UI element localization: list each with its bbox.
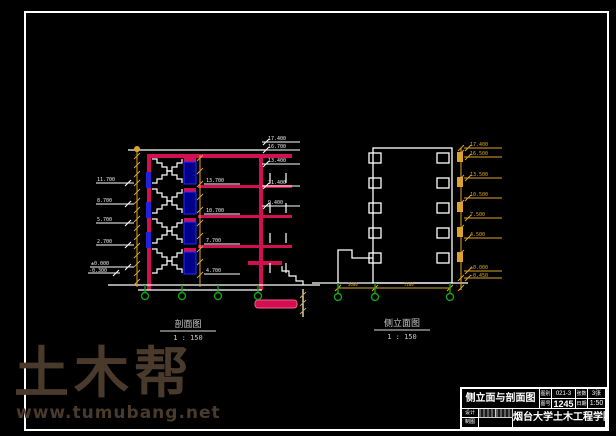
watermark-url: www.tumubang.net [16, 403, 221, 423]
dim-ticks [300, 292, 306, 314]
grid-stems [145, 285, 258, 292]
dim-window-mark [457, 227, 463, 237]
elevation-label: 10.500 [470, 192, 488, 198]
window [369, 178, 381, 188]
elevation-label: 16.700 [268, 144, 286, 150]
window [369, 228, 381, 238]
dim-window-mark [457, 202, 463, 212]
elevation-label: 5.700 [97, 217, 112, 223]
title-block-value: 3张 [588, 389, 605, 399]
dim-window-mark [457, 152, 463, 162]
elevation-label: 10.700 [206, 208, 224, 214]
elevation-dims: 3600 7200 [335, 145, 464, 291]
elevation-scale: 1 : 150 [387, 333, 417, 341]
grid-bubble [179, 293, 186, 300]
entrance-canopy [248, 261, 282, 265]
title-block-label: 图别 [540, 389, 552, 399]
section-mid-labels: 13.700 10.700 7.700 4.700 [206, 178, 224, 274]
wall-window [146, 202, 151, 218]
section-left-labels: 11.700 8.700 5.700 2.700 ±0.000 -0.300 [89, 177, 115, 274]
door-lintel [184, 248, 196, 252]
section-grid-bubbles [142, 285, 262, 300]
right-wall [259, 154, 263, 290]
floor-slab [198, 215, 292, 218]
elevation-label: -0.450 [470, 273, 488, 279]
elevation-label: 2.700 [97, 239, 112, 245]
elevation-view: 3600 7200 17.400 16.500 13.500 10.500 7.… [312, 142, 502, 341]
elevation-label: 8.700 [97, 198, 112, 204]
window [437, 253, 449, 263]
title-block-signature [479, 409, 496, 418]
dim-origin-dot [134, 146, 140, 152]
annex-outline [338, 250, 373, 283]
title-block-label: 设计 [462, 409, 479, 418]
door-lintel [184, 158, 196, 162]
title-block-empty-cell [479, 418, 513, 427]
grid-bubble [335, 294, 342, 301]
elevation-label: 13.500 [470, 172, 488, 178]
title-block-signature [496, 409, 513, 418]
section-view: 11.700 8.700 5.700 2.700 ±0.000 -0.300 1… [88, 136, 320, 342]
elevation-label: ±0.000 [470, 265, 488, 271]
entrance-steps [282, 266, 303, 285]
dim-window-mark [457, 177, 463, 187]
window [369, 153, 381, 163]
elevation-label: 11.700 [97, 177, 115, 183]
elevation-label: 7.500 [470, 212, 485, 218]
elevation-label: ±0.000 [91, 261, 109, 267]
grid-bubble [372, 294, 379, 301]
elevation-label: -0.300 [89, 268, 107, 274]
stair-door [184, 162, 196, 184]
grid-bubble [255, 293, 262, 300]
title-block-value: 021-3 [552, 389, 576, 399]
cad-viewport: 11.700 8.700 5.700 2.700 ±0.000 -0.300 1… [0, 0, 616, 436]
elevation-label: 16.500 [470, 151, 488, 157]
elevation-label: 11.400 [268, 180, 286, 186]
elevation-label: 17.400 [268, 136, 286, 142]
elevation-label: 4.500 [470, 232, 485, 238]
grid-bubble [215, 293, 222, 300]
elevation-label: 17.400 [470, 142, 488, 148]
window [437, 178, 449, 188]
section-title: 剖面图 [174, 318, 201, 330]
stair-door [184, 222, 196, 244]
window [437, 228, 449, 238]
grid-bubble [447, 294, 454, 301]
title-block-drawing-title: 侧立面与剖面图 [462, 389, 540, 409]
floor-slab [198, 245, 292, 248]
elevation-label: 13.700 [206, 178, 224, 184]
elevation-labels: 17.400 16.500 13.500 10.500 7.500 4.500 … [470, 142, 488, 279]
dim-value: 3600 [348, 282, 358, 287]
window [437, 153, 449, 163]
wall-window [146, 172, 151, 188]
section-right-labels: 17.400 16.700 13.400 11.400 9.400 [268, 136, 286, 206]
wall-window [146, 232, 151, 248]
stair-door [184, 252, 196, 274]
elevation-label: 4.700 [206, 268, 221, 274]
section-mid-marker-lines [204, 184, 240, 274]
door-lintel [184, 188, 196, 192]
door-lintel [184, 218, 196, 222]
title-block-school: 烟台大学土木工程学院 [513, 409, 605, 427]
title-block-label: 制图 [462, 418, 479, 427]
elevation-title: 侧立面图 [384, 317, 420, 329]
title-block-label: 张数 [576, 389, 588, 399]
grid-bubble [142, 293, 149, 300]
watermark-logo: 土木帮 [14, 346, 194, 401]
dim-value: 7200 [404, 282, 414, 287]
section-white-lines [108, 150, 320, 317]
ground-beam [255, 300, 297, 308]
section-dim-lines [134, 147, 306, 314]
title-block: 侧立面与剖面图 图别 图号 021-3 1245 张数 日期 3张 1:50 设… [460, 387, 607, 429]
window [369, 203, 381, 213]
elevation-label: 7.700 [206, 238, 221, 244]
elevation-label: 13.400 [268, 158, 286, 164]
window [437, 203, 449, 213]
dim-window-mark [457, 252, 463, 262]
stair-door [184, 192, 196, 214]
elevation-outline [312, 148, 468, 283]
elevation-label: 9.400 [268, 200, 283, 206]
